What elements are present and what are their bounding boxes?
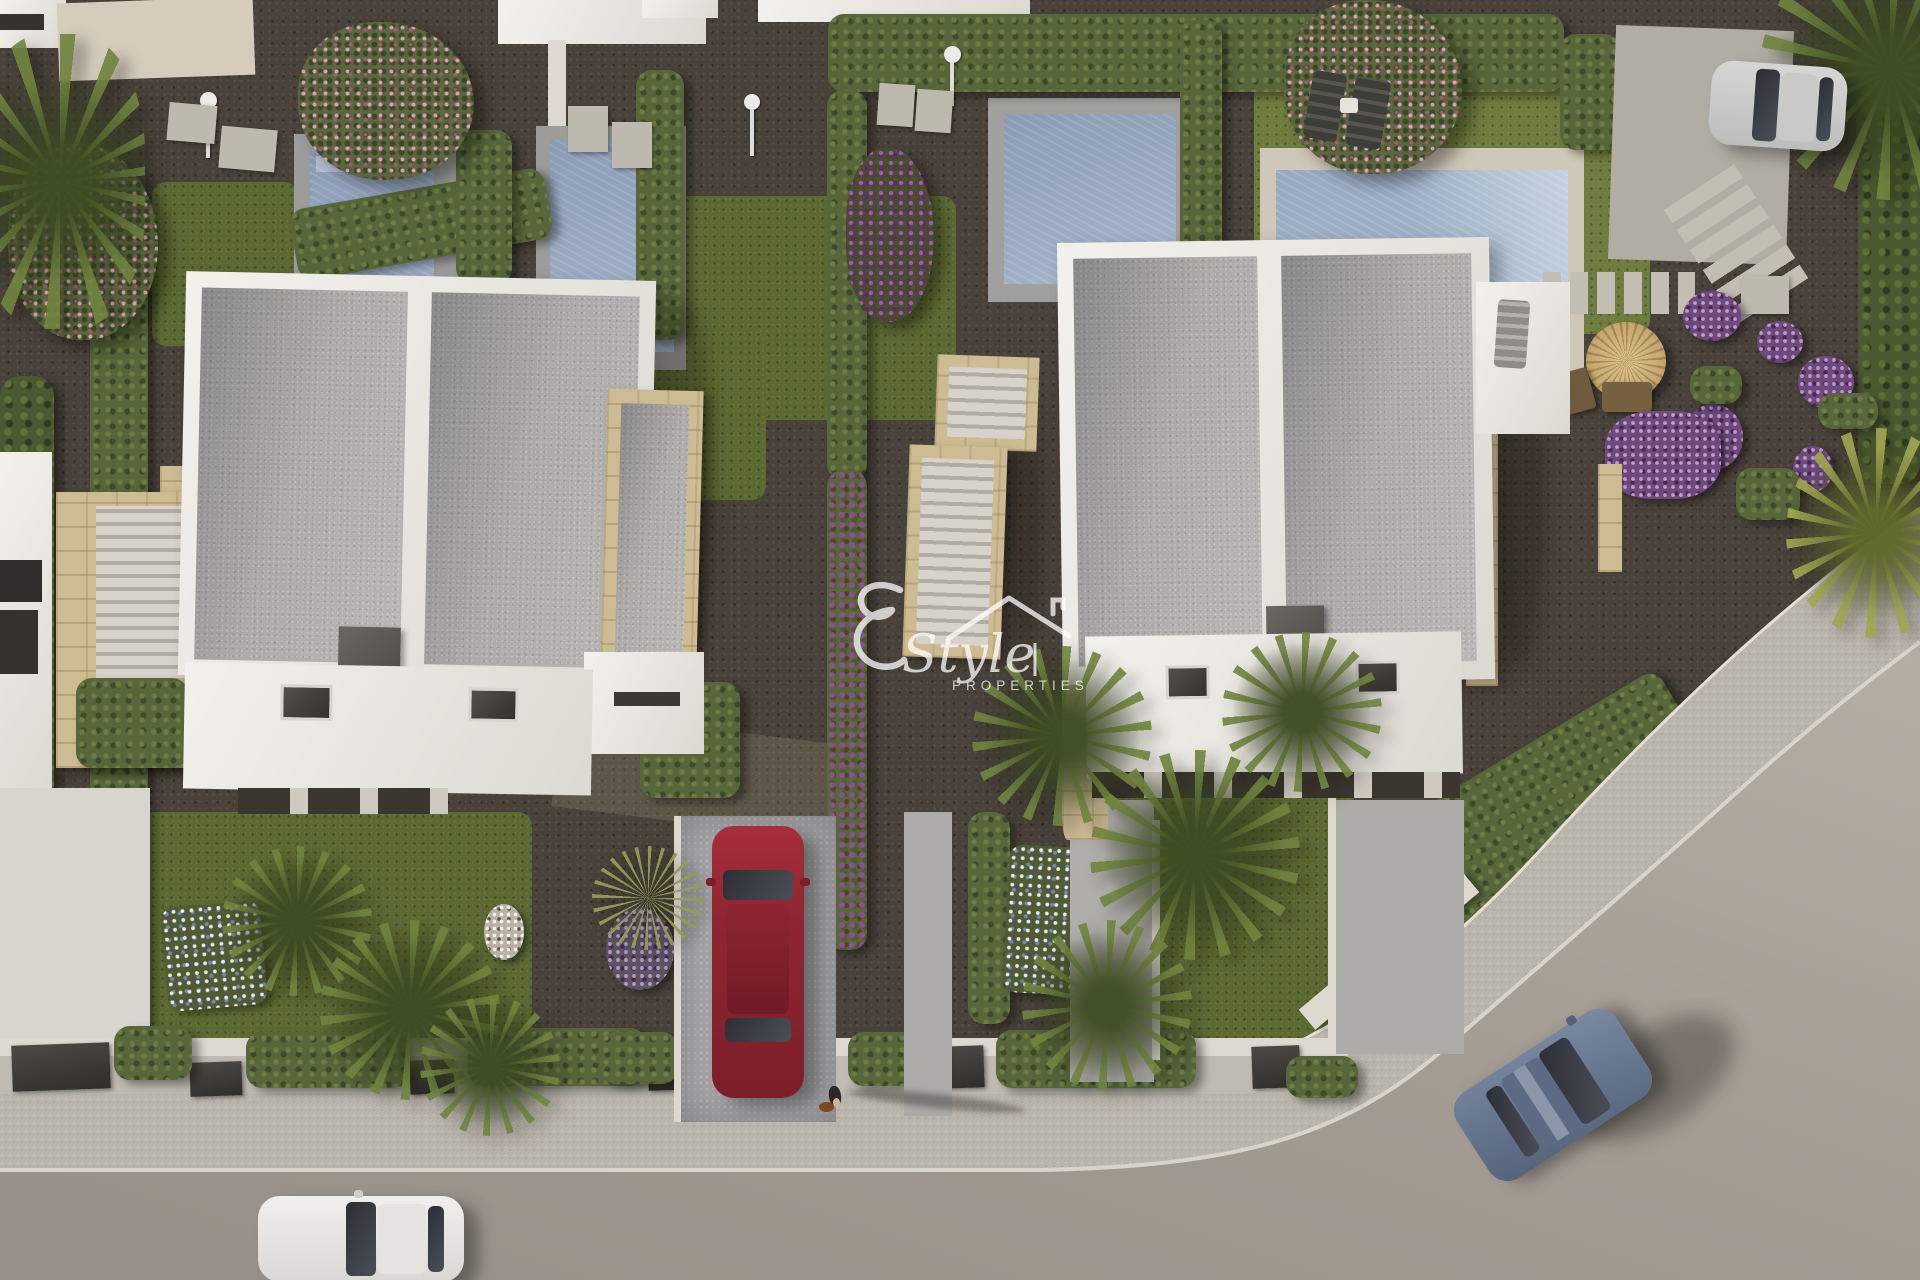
white-car-mirror	[354, 1190, 363, 1198]
street-shrub	[600, 1032, 678, 1084]
right-villa-roof-panel-a	[1073, 256, 1263, 667]
left-villa-terrace-deck	[96, 506, 188, 678]
white-car-windshield	[346, 1202, 376, 1276]
garden-wall-right2	[1328, 796, 1336, 1054]
entry-pergola-upper	[934, 354, 1039, 452]
neighbor-terrace-left	[0, 788, 150, 1050]
left-villa-side-pergola-top	[615, 403, 690, 657]
wing-sun-lounger	[1494, 299, 1531, 369]
entry-pergola-upper-slats	[947, 367, 1027, 440]
red-car-mirror	[800, 878, 810, 886]
watermark-script-flourish	[857, 585, 904, 667]
red-car-rear-window	[725, 1018, 791, 1042]
driveway-gate	[11, 1042, 111, 1091]
neighbor-window	[0, 560, 42, 602]
silver-car	[1707, 59, 1849, 152]
red-car	[712, 826, 804, 1098]
red-car-roof	[727, 904, 789, 1014]
white-car-roof	[378, 1204, 426, 1274]
left-villa-roof-panel-a	[194, 287, 408, 663]
skylight	[468, 687, 519, 722]
left-villa-main-roof	[178, 271, 656, 685]
silver-car-rear-window	[1816, 77, 1834, 142]
left-villa-porch-slats	[238, 788, 448, 814]
pedestrian-gate	[189, 1061, 242, 1097]
palm-right-yard	[1222, 632, 1382, 792]
silver-car-roof	[1778, 72, 1819, 142]
red-car-windshield	[723, 870, 793, 900]
street-shrub	[1286, 1056, 1358, 1098]
red-car-mirror	[706, 878, 716, 886]
watermark-chimney-icon	[1053, 600, 1063, 614]
white-car-rear-window	[428, 1206, 444, 1272]
patio-right-yard	[1334, 800, 1464, 1054]
left-villa-side-pergola	[600, 389, 703, 671]
palm-right-yard	[1022, 920, 1192, 1090]
skylight	[1165, 665, 1209, 700]
neighbor-window	[0, 610, 38, 674]
skylight	[280, 684, 333, 721]
palm-left-yard	[420, 996, 560, 1136]
watermark-brand-text: Style	[902, 625, 1035, 685]
dog	[819, 1102, 834, 1112]
right-villa-roof-panel-b	[1281, 253, 1477, 664]
silver-car-windshield	[1752, 68, 1781, 141]
left-villa-entry-window	[614, 692, 680, 706]
walkway-right-yard	[904, 812, 952, 1116]
terrace-shrubs	[76, 678, 188, 768]
right-villa-main-roof	[1057, 237, 1495, 685]
white-ball-shrub	[484, 904, 524, 960]
yucca-plant	[592, 846, 704, 950]
left-villa-lower-roof	[183, 662, 593, 795]
street-shrub	[114, 1026, 192, 1080]
white-car	[258, 1196, 464, 1280]
pedestrian-legs	[833, 1098, 840, 1107]
aerial-render-scene: Style PROPERTIES	[0, 0, 1920, 1280]
watermark-subtitle-text: PROPERTIES	[952, 678, 1089, 693]
watermark-logo: Style PROPERTIES	[842, 568, 1094, 708]
